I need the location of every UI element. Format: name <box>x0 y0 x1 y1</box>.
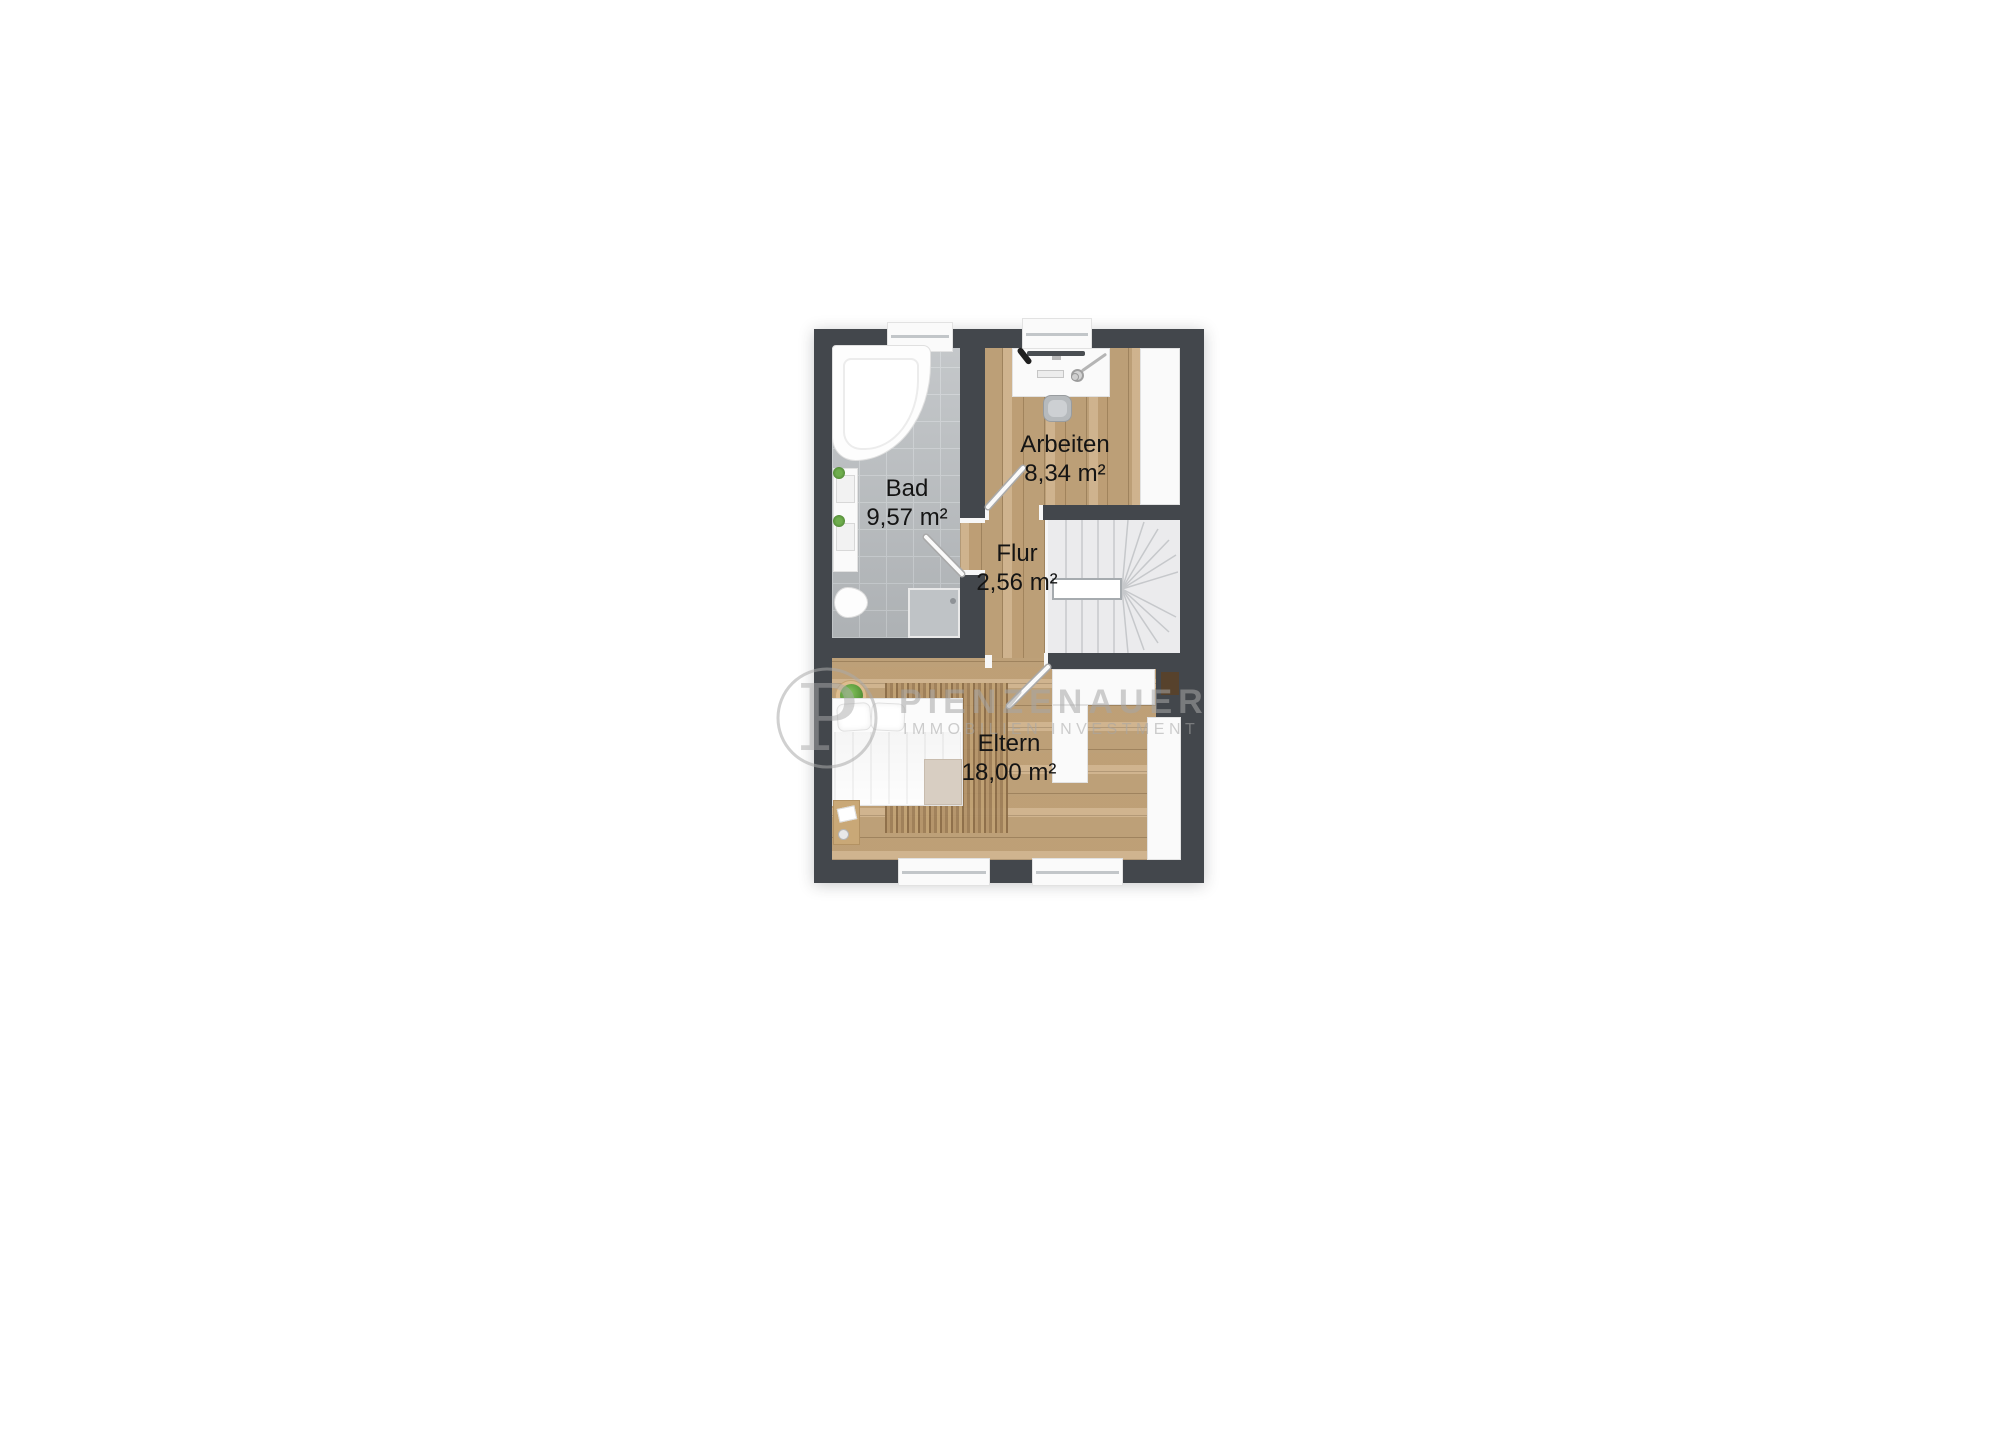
room-label-flur: Flur 2,56 m² <box>976 539 1057 597</box>
door-leaves <box>814 329 1204 883</box>
room-name-flur: Flur <box>976 539 1057 568</box>
room-label-arbeiten: Arbeiten 8,34 m² <box>1020 430 1109 488</box>
room-area-flur: 2,56 m² <box>976 568 1057 597</box>
room-name-arbeiten: Arbeiten <box>1020 430 1109 459</box>
page: { "floorplan": { "title": "Obergeschoss … <box>0 0 2000 1431</box>
room-label-bad: Bad 9,57 m² <box>866 474 947 532</box>
room-name-eltern: Eltern <box>962 729 1057 758</box>
room-name-bad: Bad <box>866 474 947 503</box>
floor-plan: Bad 9,57 m² Arbeiten 8,34 m² Flur 2,56 m… <box>814 329 1204 883</box>
room-area-arbeiten: 8,34 m² <box>1020 459 1109 488</box>
room-area-eltern: 18,00 m² <box>962 758 1057 787</box>
room-label-eltern: Eltern 18,00 m² <box>962 729 1057 787</box>
room-area-bad: 9,57 m² <box>866 503 947 532</box>
